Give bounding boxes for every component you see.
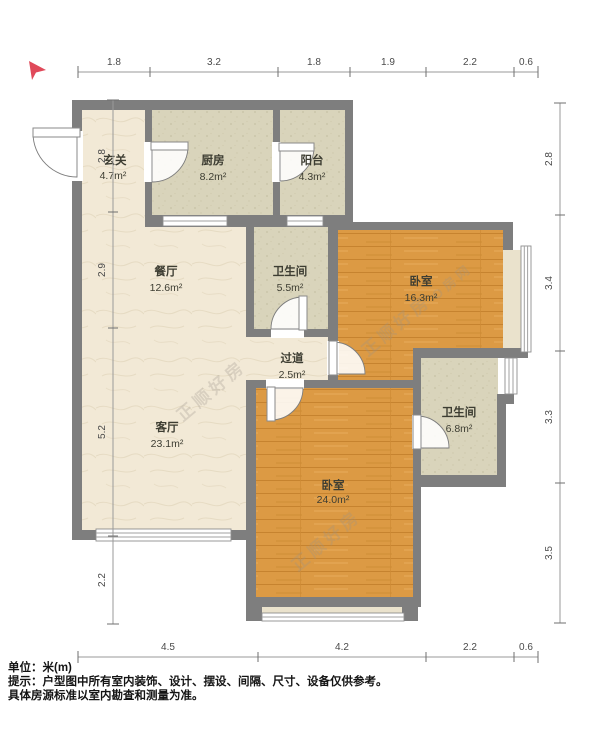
- dimension-top: 1.8 3.2 1.8 1.9 2.2 0.6: [78, 57, 538, 78]
- entrance-door: [33, 128, 80, 177]
- dim-bottom-1: 4.5: [161, 642, 175, 653]
- dim-top-4: 1.9: [381, 57, 395, 68]
- room-area-dining: 12.6m²: [150, 282, 183, 294]
- dim-bottom-2: 4.2: [335, 642, 349, 653]
- floor-plan-page: 正顺好房 正顺好房 正顺好房 O房网: [0, 0, 600, 729]
- dim-right-2: 3.4: [544, 276, 555, 290]
- room-area-corridor: 2.5m²: [279, 369, 306, 381]
- dimension-right: 2.8 3.4 3.3 3.5: [544, 103, 566, 623]
- dim-top-2: 3.2: [207, 57, 221, 68]
- dimension-bottom: 4.5 4.2 2.2 0.6: [78, 642, 538, 663]
- dim-left-4: 2.2: [97, 573, 108, 587]
- bedroom2-bay-sill: [258, 606, 408, 613]
- dim-top-6: 0.6: [519, 57, 533, 68]
- room-label-kitchen: 厨房: [202, 153, 225, 167]
- dim-bottom-4: 0.6: [519, 642, 533, 653]
- dim-left-1: 2.8: [97, 149, 108, 163]
- room-label-dining: 餐厅: [154, 264, 178, 278]
- room-area-bathroom1: 5.5m²: [277, 282, 304, 294]
- dim-top-5: 2.2: [463, 57, 477, 68]
- bedroom1-bay-window: [521, 246, 531, 352]
- room-area-bathroom2: 6.8m²: [446, 423, 473, 435]
- footer-disclaimer-2: 具体房源标准以室内勘查和测量为准。: [8, 688, 204, 702]
- dim-top-1: 1.8: [107, 57, 121, 68]
- room-label-bathroom1: 卫生间: [273, 264, 308, 278]
- room-label-bedroom1: 卧室: [410, 274, 433, 288]
- room-area-bedroom2: 24.0m²: [317, 494, 350, 506]
- bedroom1-bay-sill: [503, 250, 521, 350]
- dim-left-2: 2.9: [97, 263, 108, 277]
- bathroom2-window: [505, 358, 517, 394]
- room-label-balcony: 阳台: [301, 153, 324, 167]
- room-area-balcony: 4.3m²: [299, 171, 326, 183]
- room-area-kitchen: 8.2m²: [200, 171, 227, 183]
- room-label-bedroom2: 卧室: [322, 478, 345, 492]
- dim-right-4: 3.5: [544, 546, 555, 560]
- footer-notes: 单位：米(m) 提示：户型图中所有室内装饰、设计、摆设、间隔、尺寸、设备仅供参考…: [8, 660, 388, 702]
- compass-north-arrow-icon: [29, 61, 46, 80]
- floor-plan-canvas: 正顺好房 正顺好房 正顺好房 O房网: [0, 0, 600, 729]
- bedroom2-bay-window: [262, 613, 404, 621]
- room-label-bathroom2: 卫生间: [442, 405, 477, 419]
- dim-bottom-3: 2.2: [463, 642, 477, 653]
- living-room-window: [96, 529, 231, 541]
- dim-right-1: 2.8: [544, 152, 555, 166]
- room-area-living: 23.1m²: [151, 438, 184, 450]
- room-label-living: 客厅: [155, 420, 179, 434]
- dim-top-3: 1.8: [307, 57, 321, 68]
- footer-disclaimer-1: 提示：户型图中所有室内装饰、设计、摆设、间隔、尺寸、设备仅供参考。: [8, 674, 388, 688]
- room-area-bedroom1: 16.3m²: [405, 292, 438, 304]
- room-label-corridor: 过道: [281, 351, 304, 365]
- footer-unit-note: 单位：米(m): [8, 660, 72, 674]
- dim-left-3: 5.2: [97, 425, 108, 439]
- dim-right-3: 3.3: [544, 410, 555, 424]
